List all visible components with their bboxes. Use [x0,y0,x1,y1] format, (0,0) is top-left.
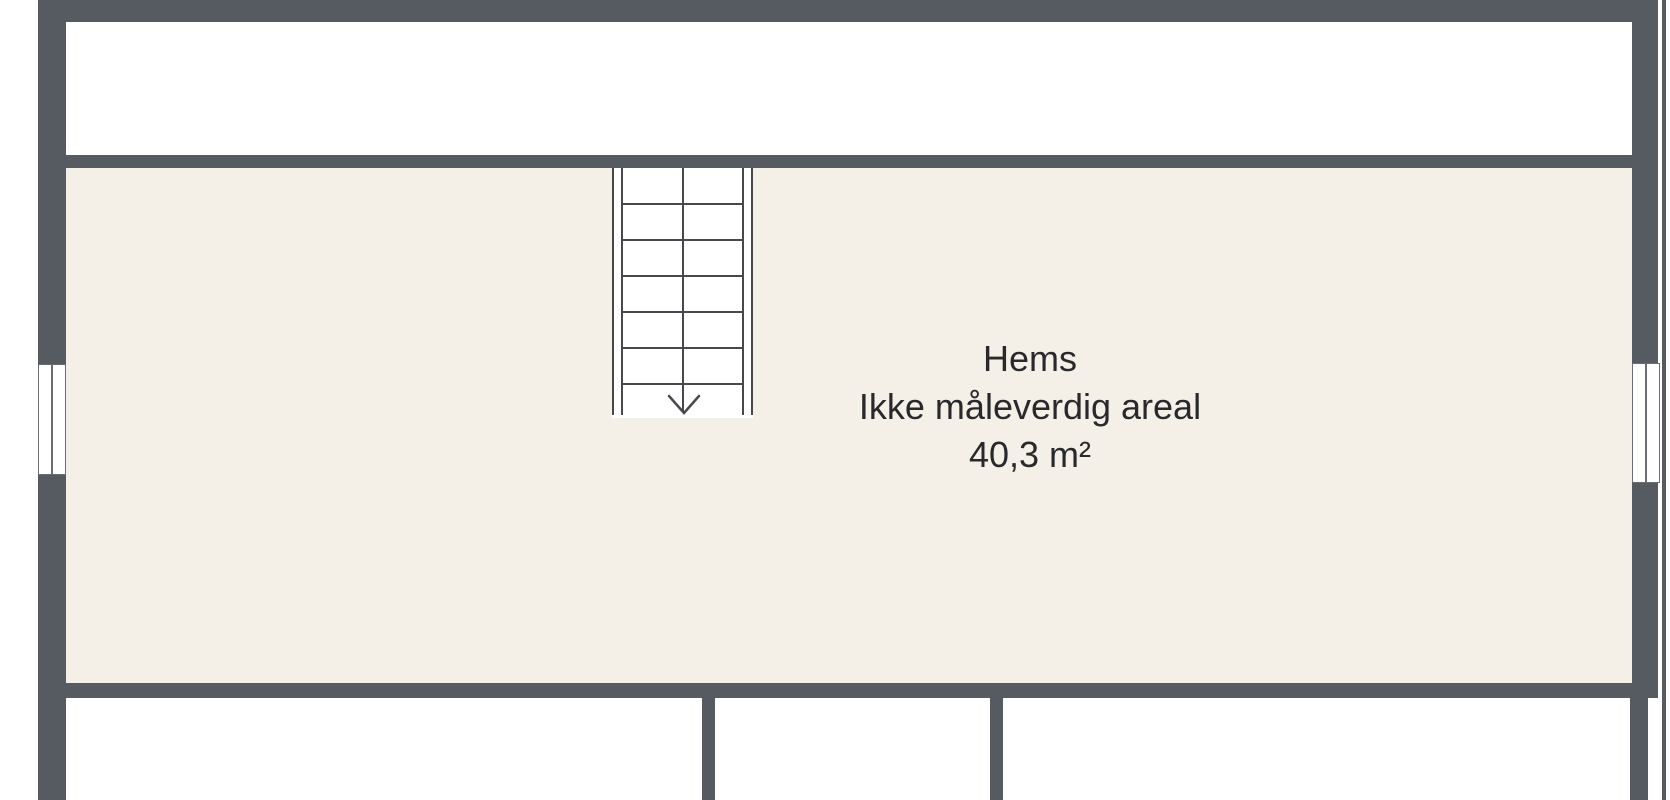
hems-north-wall [66,155,1632,168]
stair-down-arrow-icon [667,394,701,416]
stair-stringer-left-outer [612,168,614,415]
hems-south-wall [66,683,1648,698]
stair-step-line [622,203,743,205]
lower-divider-wall-1 [702,697,715,800]
stair-step-line [622,311,743,313]
left-window-symbol [38,364,66,475]
lower-room-middle [715,698,990,800]
stair-stringer-right-outer [751,168,753,415]
stair-stringer-right-inner [742,168,744,415]
lower-room-right [1003,698,1630,800]
lower-room-left [66,698,702,800]
right-wall-lower [1630,683,1648,800]
stair-stringer-left-inner [621,168,623,415]
floor-plan: Hems Ikke måleverdig areal 40,3 m² [0,0,1670,800]
right-outline-line [1662,0,1666,800]
room-name: Hems [830,335,1230,383]
stair-step-line [622,383,743,385]
stair-step-line [622,239,743,241]
top-wall [38,0,1658,22]
room-label: Hems Ikke måleverdig areal 40,3 m² [830,335,1230,479]
lower-divider-wall-2 [990,697,1003,800]
room-area: 40,3 m² [830,431,1230,479]
stair-step-line [622,275,743,277]
right-window-symbol [1632,363,1660,483]
stair-step-line [622,347,743,349]
right-wall-upper [1632,0,1658,698]
staircase [612,168,753,418]
room-note: Ikke måleverdig areal [830,383,1230,431]
top-void-room [66,22,1632,155]
window-mullion-line [51,365,53,474]
window-mullion-line [1645,364,1647,482]
